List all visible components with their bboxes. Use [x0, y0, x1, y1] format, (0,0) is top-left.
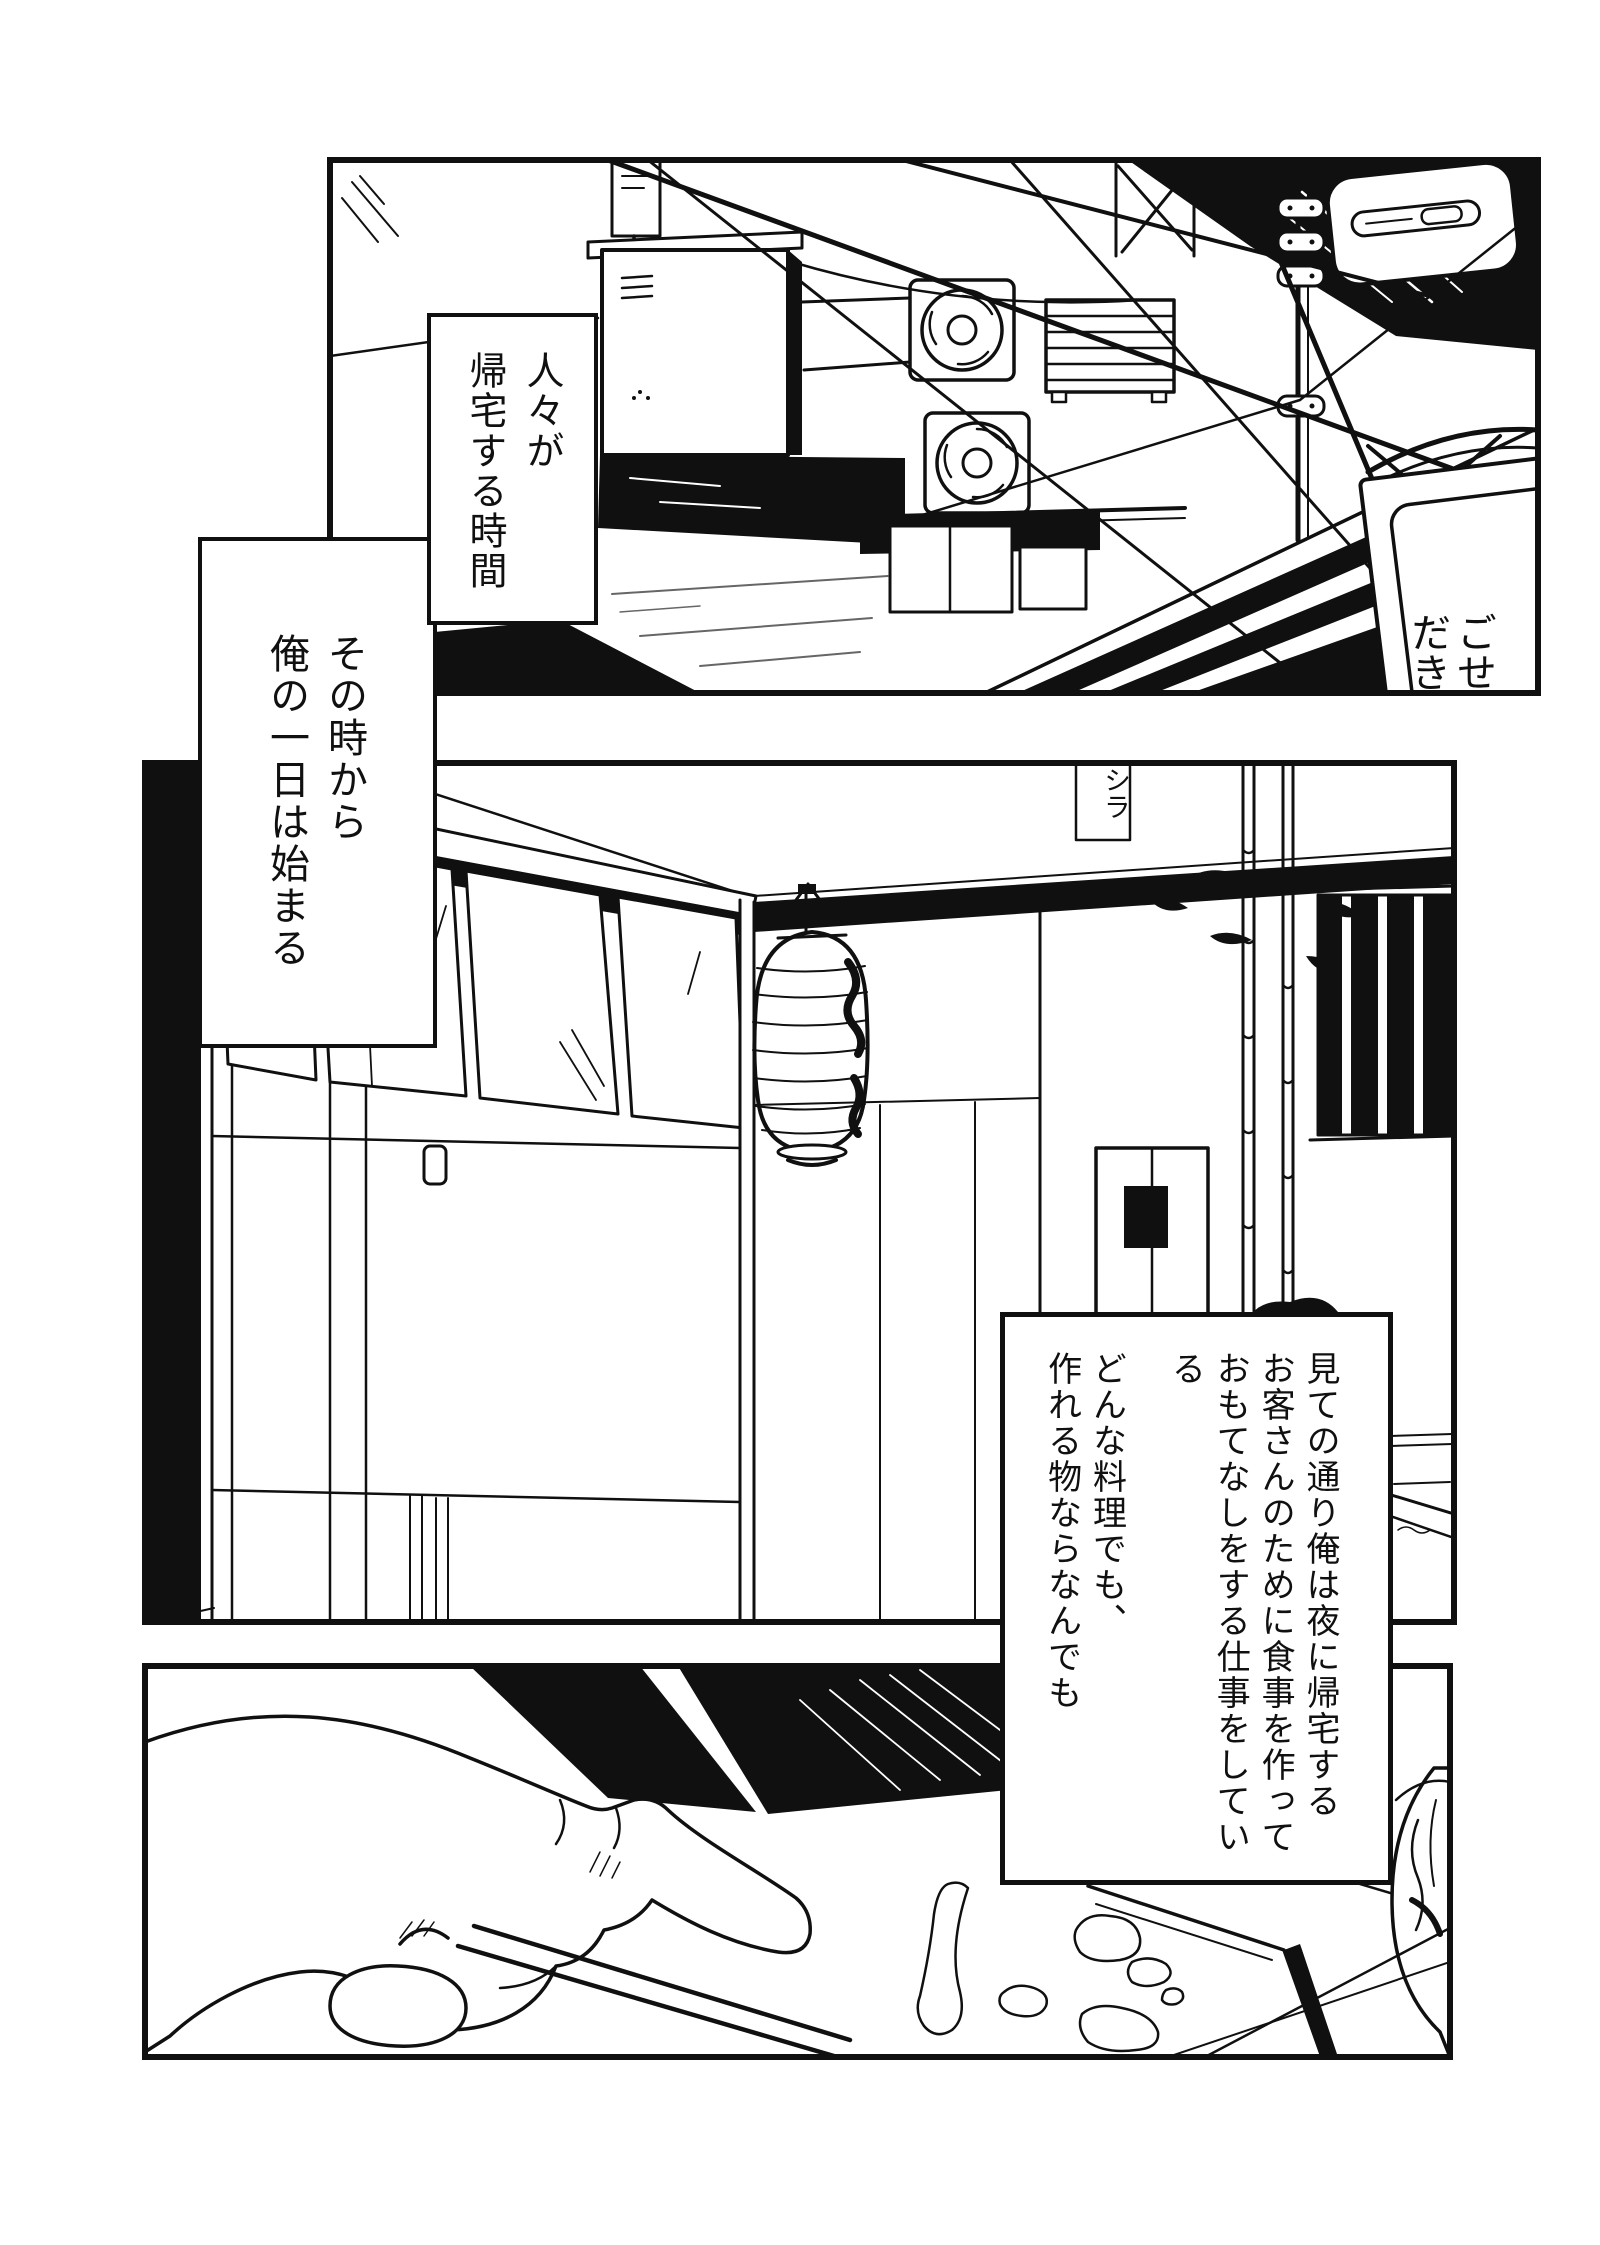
food-pieces: [918, 1883, 1183, 2051]
andon-sign-column: だき: [1404, 612, 1450, 692]
narration-column: どんな料理でも、: [1084, 1351, 1129, 1880]
wall-tag-column: シラ: [1099, 766, 1130, 836]
louver-vent: [1046, 300, 1174, 402]
pot: [1392, 1768, 1450, 2057]
narration-column: 見ての通り俺は夜に帰宅する: [1297, 1351, 1342, 1880]
narration-column: おもてなしをする仕事をしている: [1163, 1351, 1253, 1880]
manga-artwork: [0, 0, 1600, 2245]
andon-sign-column: ごせ: [1450, 612, 1496, 692]
wall-tag-text: シラ: [1082, 766, 1130, 836]
narration-box-3: 見ての通り俺は夜に帰宅する お客さんのために食事を作って おもてなしをする仕事を…: [1000, 1312, 1393, 1885]
andon-sign-text: ごせ だき: [1400, 612, 1496, 692]
narration-column: その時から: [315, 633, 373, 1044]
manga-page: その時から 俺の一日は始まる 人々が 帰宅する時間 見ての通り俺は夜に帰宅する …: [0, 0, 1600, 2245]
narration-column: 俺の一日は始まる: [257, 633, 315, 1044]
narration-box-1: 人々が 帰宅する時間: [427, 313, 598, 625]
sliding-doors: [212, 1066, 740, 1622]
street-boxes: [860, 508, 1185, 612]
narration-column: 帰宅する時間: [456, 351, 513, 621]
left-pillar: [145, 763, 201, 1622]
narration-column: 作れる物ならなんでも: [1039, 1351, 1084, 1880]
narration-box-2: その時から 俺の一日は始まる: [198, 537, 437, 1048]
narration-column: お客さんのために食事を作って: [1252, 1351, 1297, 1880]
narration-column: 人々が: [513, 351, 570, 621]
corner-post: [740, 900, 754, 1622]
street-surface: [612, 576, 888, 666]
